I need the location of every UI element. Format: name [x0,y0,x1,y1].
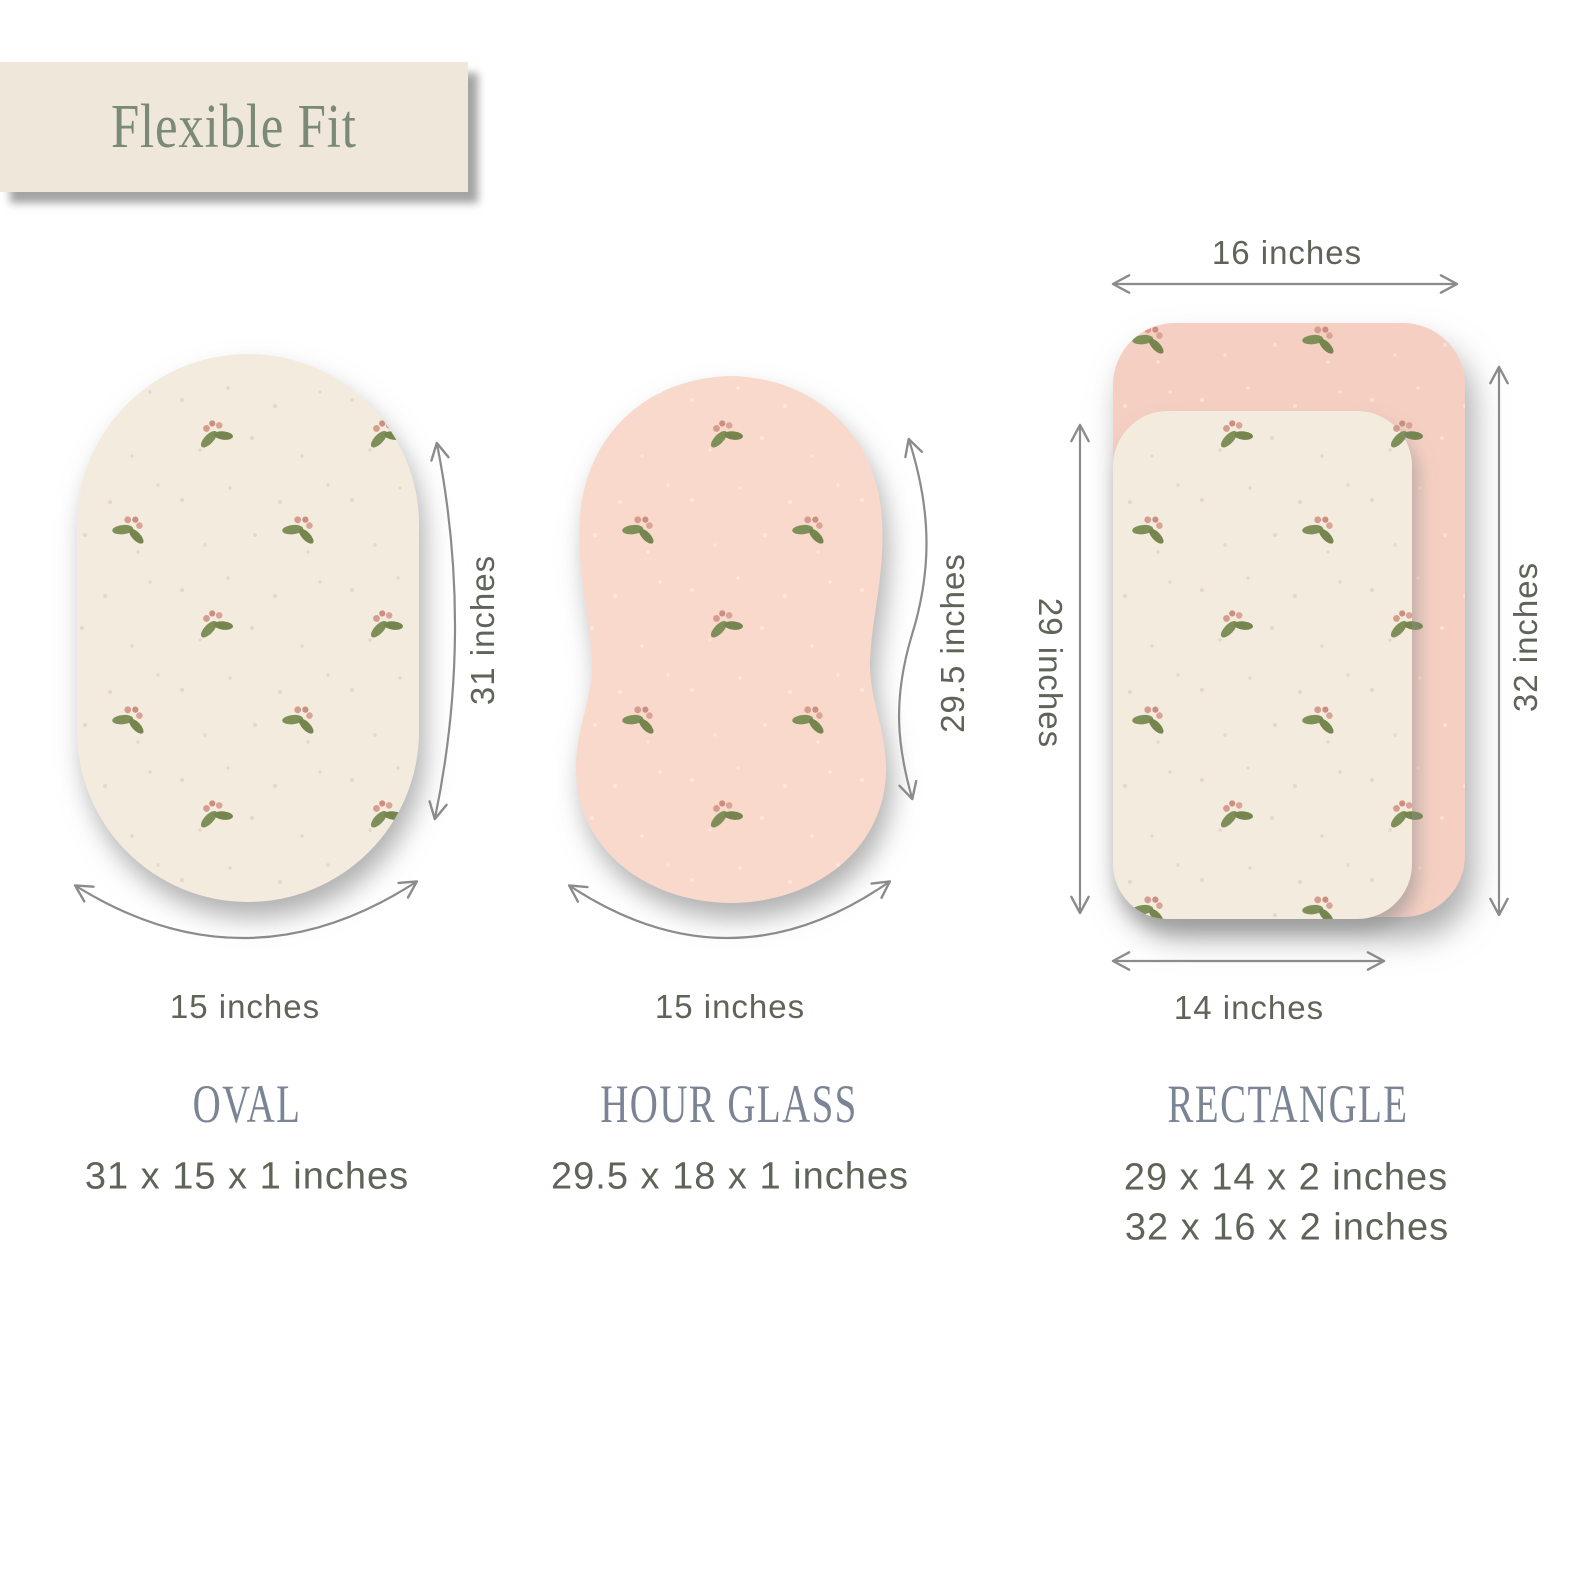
hourglass-width-dimension: 15 inches [655,988,805,1026]
rectangle-small-sheet-shape [1113,411,1412,919]
hourglass-height-dimension: 29.5 inches [934,553,972,733]
rectangle-size-spec-large: 32 x 16 x 2 inches [1125,1207,1449,1250]
oval-shape-name: OVAL [193,1073,302,1135]
page-title: Flexible Fit [111,92,357,163]
rectangle-small-width-dimension: 14 inches [1174,989,1324,1027]
hourglass-size-spec: 29.5 x 18 x 1 inches [551,1156,909,1199]
oval-width-dimension: 15 inches [170,988,320,1026]
oval-height-dimension: 31 inches [464,555,502,705]
title-box: Flexible Fit [0,62,468,192]
oval-height-arrow [435,444,455,818]
rectangle-size-spec-small: 29 x 14 x 2 inches [1124,1157,1448,1200]
oval-size-spec: 31 x 15 x 1 inches [85,1156,409,1199]
infographic-canvas: Flexible Fit 15 inches 31 inches OVAL 31… [0,0,1575,1575]
oval-sheet-shape [77,354,419,902]
rectangle-large-height-dimension: 32 inches [1507,562,1545,712]
hourglass-shape-name: HOUR GLASS [600,1073,857,1135]
rectangle-small-height-dimension: 29 inches [1031,598,1069,748]
rectangle-shape-name: RECTANGLE [1168,1073,1409,1135]
rectangle-large-width-dimension: 16 inches [1212,234,1362,272]
hourglass-height-arrow [899,440,926,798]
hourglass-sheet-shape [576,376,886,903]
